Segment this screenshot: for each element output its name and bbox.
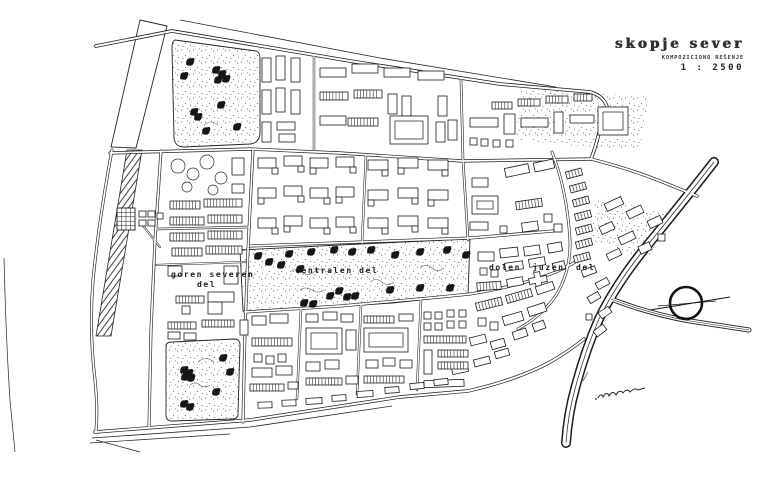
district-label-line: goren severen <box>171 270 254 280</box>
title-block: skopje sever KOMPOZICIONO REŠENJE 1 : 25… <box>615 36 744 73</box>
page-title: skopje sever <box>615 36 744 52</box>
page-subtitle: KOMPOZICIONO REŠENJE <box>615 55 744 61</box>
station-block <box>117 208 135 230</box>
district-label-dolen-juzen-del: dolen juzen del <box>489 263 595 273</box>
map-scale: 1 : 2500 <box>615 63 744 73</box>
signature <box>583 372 645 400</box>
railway-layer <box>96 150 142 336</box>
district-label-goren-severen-del: goren severen del <box>171 270 254 290</box>
railway-embankment <box>96 150 142 336</box>
district-label-line: del <box>171 280 254 290</box>
plan-sheet: skopje sever KOMPOZICIONO REŠENJE 1 : 25… <box>0 0 768 481</box>
district-label-centralen-del: centralen del <box>295 266 378 276</box>
